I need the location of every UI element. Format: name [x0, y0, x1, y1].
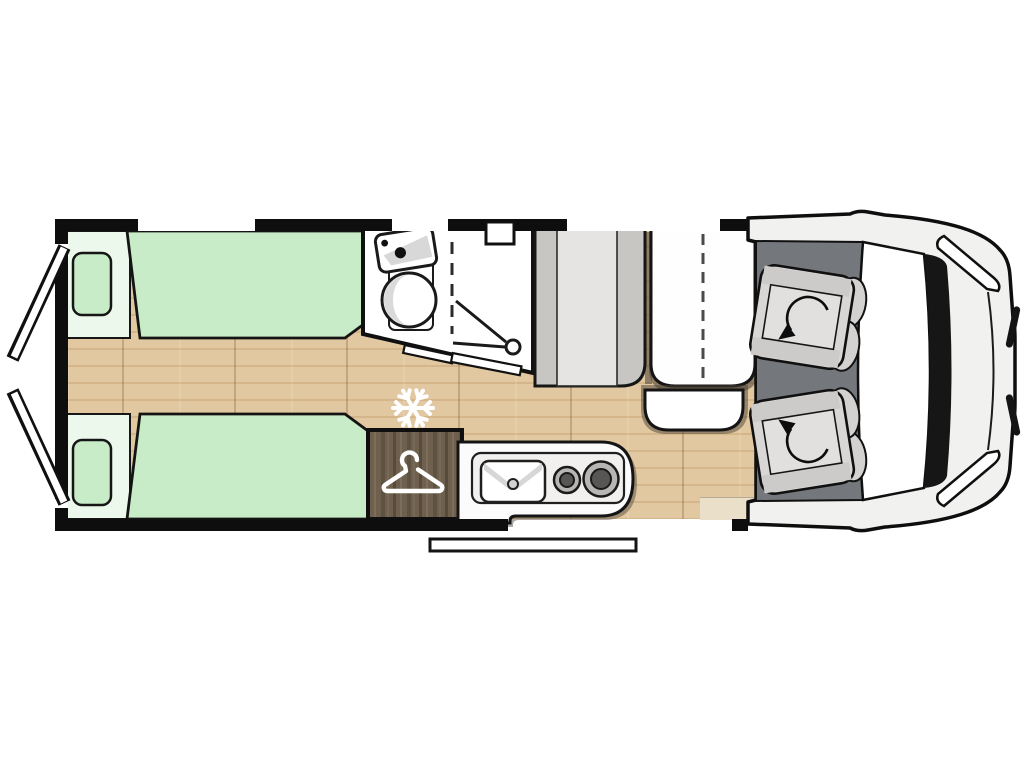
window-top-3 — [567, 218, 720, 231]
wardrobe — [368, 430, 462, 519]
dinette-bench — [651, 226, 755, 386]
floor-plan-canvas — [0, 0, 1024, 768]
tall-unit — [535, 226, 652, 386]
dinette-table — [645, 390, 743, 430]
bathroom — [363, 226, 533, 375]
hob-burner-large-center — [591, 469, 611, 489]
snowflake-icon — [393, 388, 433, 429]
seat-cushion — [762, 410, 842, 475]
shower-roof-vent — [486, 222, 514, 244]
bathroom-sink — [374, 227, 437, 274]
wardrobe-cabinet — [368, 430, 462, 519]
kitchen — [458, 442, 637, 527]
shower-drain — [506, 340, 520, 354]
floor-plan-drawing — [0, 0, 1024, 768]
entry-step — [430, 539, 636, 551]
bed-top-pillow — [73, 253, 111, 315]
rear-twin-beds — [67, 231, 368, 519]
bed-bottom-pillow — [73, 440, 111, 505]
dinette — [641, 226, 759, 434]
cab — [748, 211, 1021, 530]
unit-center-panel — [557, 226, 617, 386]
hob-burner-small-center — [560, 473, 574, 487]
bed-top-mattress — [127, 231, 364, 338]
windshield — [858, 242, 930, 500]
wall-bottom-left — [55, 519, 508, 531]
bed-bottom-mattress — [127, 414, 368, 519]
sink-drain-icon — [508, 479, 518, 489]
cab-seat-bottom — [748, 386, 869, 496]
window-top-1 — [138, 218, 255, 231]
window-top-2 — [392, 218, 448, 231]
wall-bottom-right — [732, 519, 748, 531]
seat-cushion — [762, 285, 842, 350]
cab-seat-top — [748, 263, 869, 373]
